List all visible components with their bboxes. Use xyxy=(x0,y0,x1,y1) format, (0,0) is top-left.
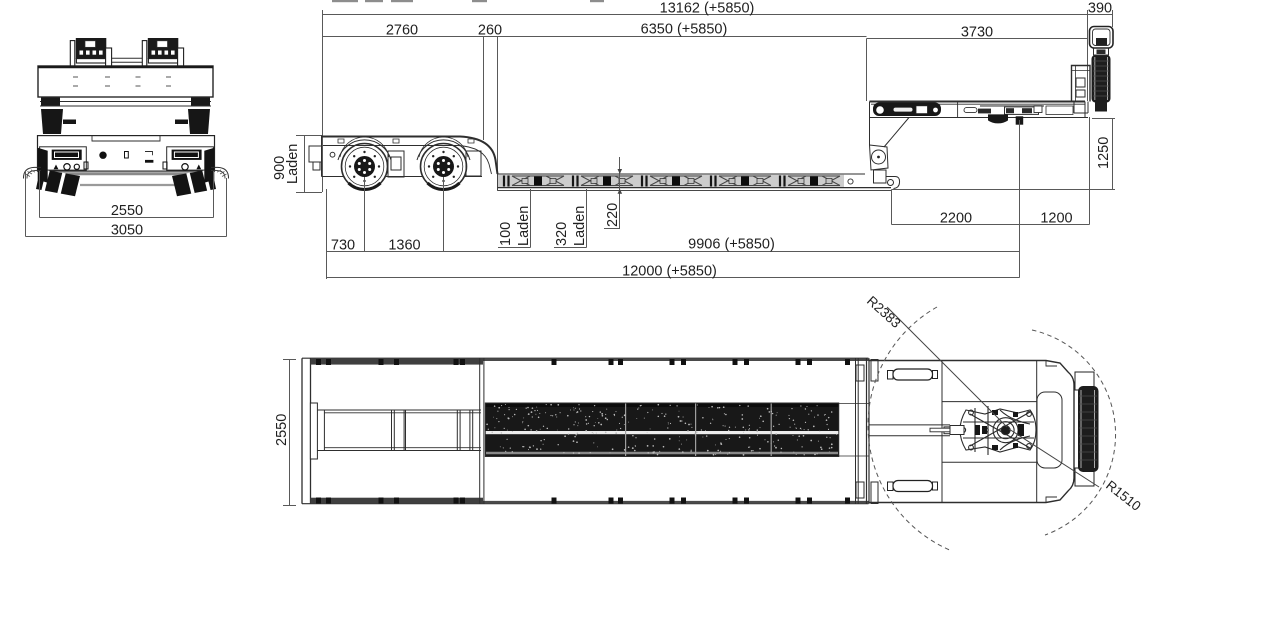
svg-text:12000 (+5850): 12000 (+5850) xyxy=(622,264,717,280)
svg-text:3730: 3730 xyxy=(961,25,993,41)
svg-text:2760: 2760 xyxy=(386,23,418,39)
svg-text:1250: 1250 xyxy=(1096,137,1112,169)
svg-text:Laden: Laden xyxy=(572,206,588,246)
svg-text:Laden: Laden xyxy=(285,144,301,184)
svg-text:1360: 1360 xyxy=(388,238,420,254)
svg-text:Laden: Laden xyxy=(516,206,532,246)
svg-text:2550: 2550 xyxy=(111,203,143,219)
svg-text:730: 730 xyxy=(331,238,355,254)
svg-text:13162 (+5850): 13162 (+5850) xyxy=(660,1,755,17)
svg-text:320: 320 xyxy=(554,222,570,246)
svg-text:3050: 3050 xyxy=(111,223,143,239)
svg-text:2550: 2550 xyxy=(274,414,290,446)
svg-text:2200: 2200 xyxy=(940,211,972,227)
svg-text:1200: 1200 xyxy=(1040,211,1072,227)
svg-text:390: 390 xyxy=(1088,1,1112,17)
svg-text:220: 220 xyxy=(605,203,621,227)
svg-text:260: 260 xyxy=(478,23,502,39)
svg-text:100: 100 xyxy=(498,222,514,246)
svg-text:9906 (+5850): 9906 (+5850) xyxy=(688,237,775,253)
svg-text:6350 (+5850): 6350 (+5850) xyxy=(641,22,728,38)
